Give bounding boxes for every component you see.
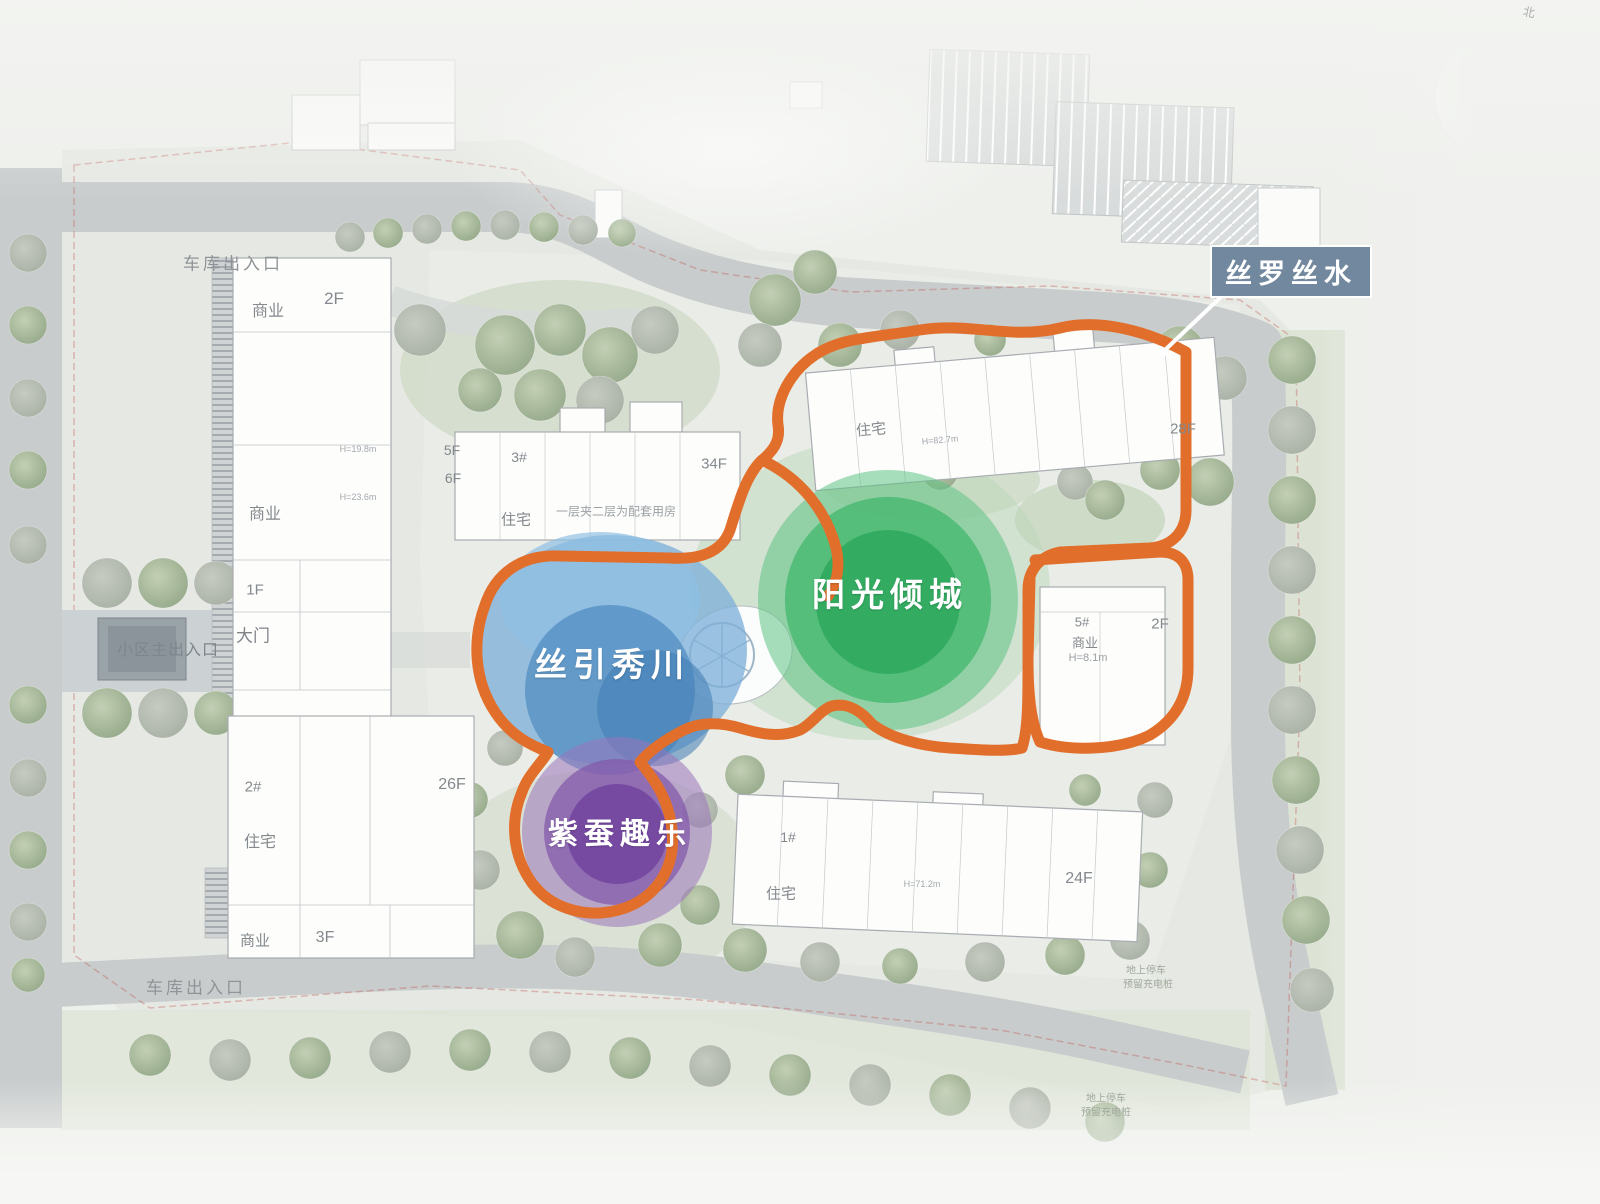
left-commercial-building	[233, 258, 391, 722]
site-base-map	[0, 0, 1600, 1204]
left-residential-building	[228, 716, 474, 958]
east-commercial-building	[1040, 587, 1165, 745]
legend-box-label: 丝罗丝水	[1225, 252, 1357, 291]
legend-box: 丝罗丝水	[1212, 247, 1370, 296]
main-entrance-plaza	[62, 610, 232, 692]
north-arrow	[1435, 35, 1559, 159]
site-plan-stage: 车库出入口 商业 2F H=19.8m H=23.6m 商业 1F 大门 小区主…	[0, 0, 1600, 1204]
zone-sun-circles	[758, 470, 1018, 730]
